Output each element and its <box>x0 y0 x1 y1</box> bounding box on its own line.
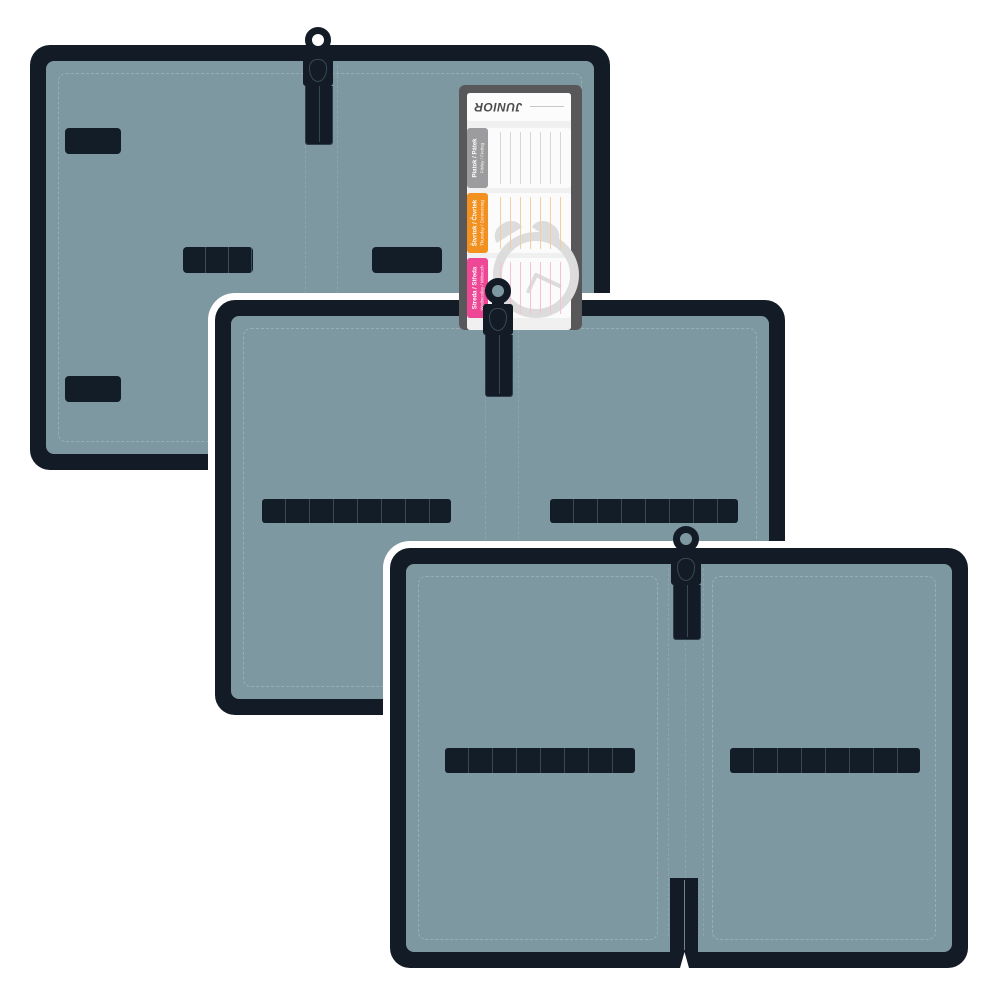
day-tab: Štvrtok / Čtvrtek Thursday / Donnerstag <box>467 193 488 253</box>
zipper-slider <box>303 55 333 86</box>
elastic-strap <box>550 499 738 523</box>
day-label: Piatok / Pátek <box>472 138 479 177</box>
day-label: Štvrtok / Čtvrtek <box>472 200 479 246</box>
zipper-pull-icon <box>673 526 699 552</box>
zipper-pull-icon <box>305 27 331 53</box>
day-sublabel: Thursday / Donnerstag <box>479 200 484 246</box>
timetable-card: JUNIOR Piatok / Pátek Friday / Freitag Š… <box>459 85 582 330</box>
card-header: JUNIOR <box>467 93 571 121</box>
timetable-columns <box>491 197 568 249</box>
zipper-tape <box>673 585 701 640</box>
day-sublabel: Friday / Freitag <box>479 143 484 173</box>
elastic-strap <box>183 247 253 273</box>
elastic-strap <box>372 247 442 273</box>
day-sublabel: Wednesday / Mittwoch <box>479 265 484 310</box>
elastic-strap <box>262 499 451 523</box>
day-row: Piatok / Pátek Friday / Freitag <box>467 128 571 188</box>
folder-front <box>390 548 968 968</box>
spine-center-seam <box>685 643 686 878</box>
timetable-columns <box>491 132 568 184</box>
zipper-tape <box>305 86 333 145</box>
spine-fold <box>668 568 669 936</box>
zipper-slider <box>671 554 701 585</box>
pen-loop-bar <box>65 376 121 402</box>
junior-logo: JUNIOR <box>474 100 522 114</box>
day-tab: Piatok / Pátek Friday / Freitag <box>467 128 488 188</box>
zipper-pull-icon <box>485 278 511 304</box>
elastic-strap <box>730 748 920 773</box>
spine-fold <box>703 568 704 936</box>
elastic-strap <box>445 748 635 773</box>
pen-loop-bar <box>65 128 121 154</box>
bottom-notch-seam <box>684 880 685 950</box>
header-rule <box>530 107 564 108</box>
zipper-tape <box>485 335 513 397</box>
zipper-slider <box>483 304 513 335</box>
day-label: Streda / Středa <box>472 267 479 309</box>
day-row: Štvrtok / Čtvrtek Thursday / Donnerstag <box>467 193 571 253</box>
